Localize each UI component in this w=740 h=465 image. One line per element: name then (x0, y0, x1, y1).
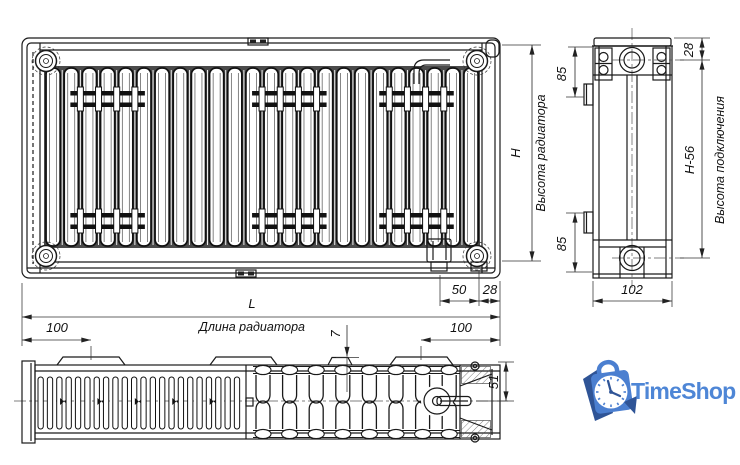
dim-cap-offset: 28 (681, 42, 696, 58)
fin-tie (77, 209, 83, 233)
chain-link (308, 429, 324, 438)
drain-valve (421, 385, 471, 417)
fin-tie (277, 87, 283, 111)
channel-tube (191, 68, 205, 246)
u-fin (283, 401, 297, 429)
dim-height-symbol: H (508, 148, 523, 158)
chain-link (335, 365, 351, 374)
fin-tie (132, 87, 138, 111)
channel-tube (173, 68, 187, 246)
clock-tick (622, 398, 624, 399)
u-fin (389, 401, 403, 429)
fin-tie (277, 209, 283, 233)
radiator-technical-drawing: H Высота радиатора 50 28 L Длина радиато… (0, 0, 740, 465)
chain-link (388, 429, 404, 438)
grille-slat (113, 377, 118, 429)
fin-tie (314, 209, 320, 233)
side-bracket-tabs (584, 84, 593, 233)
dim-tab-height: 7 (328, 330, 343, 338)
fin-tie (132, 209, 138, 233)
dim-half-depth: 51 (486, 375, 501, 389)
u-fin (309, 401, 323, 429)
dim-connection-spacing: H-56 (682, 145, 697, 174)
clock-tick (604, 379, 605, 381)
grille-slat (66, 377, 71, 429)
grille-slat (216, 377, 221, 429)
bottom-view-drawing (14, 357, 508, 443)
fin-tie (404, 87, 410, 111)
bottom-bracket-tabs (57, 357, 453, 365)
chain-link (308, 365, 324, 374)
clock-tick (617, 403, 618, 405)
plug (467, 51, 488, 72)
side-view-drawing (584, 28, 684, 288)
chain-link (282, 365, 298, 374)
plug (36, 246, 57, 267)
clock-tick (622, 385, 624, 386)
dim-left-bracket: 100 (46, 320, 68, 335)
u-fin (256, 401, 270, 429)
fin-tie (114, 87, 120, 111)
chain-link (361, 365, 377, 374)
grille-slat (225, 377, 230, 429)
grille-slat (103, 377, 108, 429)
timeshop-logo-icon (583, 360, 637, 421)
chain-link (441, 365, 457, 374)
plug (467, 246, 488, 267)
grille-slat (178, 377, 183, 429)
fin-tie (114, 209, 120, 233)
channel-tube (46, 68, 60, 246)
plug (36, 51, 57, 72)
u-fin (389, 375, 403, 403)
u-fin (336, 375, 350, 403)
grille-slat (234, 377, 239, 429)
grille-slat (197, 377, 202, 429)
fin-tie (441, 209, 447, 233)
fin-tie (295, 209, 301, 233)
dim-nipple-spacing: 50 (452, 282, 467, 297)
dim-height-caption: Высота радиатора (534, 94, 548, 211)
u-fin (309, 375, 323, 403)
clock-tick (598, 398, 600, 399)
timeshop-logo: TimeShop (583, 360, 736, 421)
front-view-drawing (22, 38, 500, 278)
grille-slat (150, 377, 155, 429)
grille-slat (38, 377, 43, 429)
channel-tube (355, 68, 369, 246)
chain-link (282, 429, 298, 438)
fin-tie (314, 87, 320, 111)
channel-tube (337, 68, 351, 246)
dim-bottom-bracket: 85 (554, 236, 569, 251)
chain-link (255, 365, 271, 374)
channel-tube (210, 68, 224, 246)
chain-link (388, 365, 404, 374)
dim-edge-offset: 28 (482, 282, 498, 297)
chain-link (415, 365, 431, 374)
u-fin (362, 401, 376, 429)
fin-tie (386, 87, 392, 111)
bottom-end-cap (460, 362, 492, 442)
channel-tube (155, 68, 169, 246)
side-connection-ports (612, 48, 684, 279)
clock-tick (617, 379, 618, 381)
channel-tube (228, 68, 242, 246)
grille-slat (122, 377, 127, 429)
grille-slat (160, 377, 165, 429)
dim-top-bracket: 85 (554, 66, 569, 81)
grille-slat (85, 377, 90, 429)
fin-tie (423, 209, 429, 233)
fin-tie (423, 87, 429, 111)
fin-tie (259, 87, 265, 111)
chain-link (441, 429, 457, 438)
grille-slat (188, 377, 193, 429)
clock-tick (598, 385, 600, 386)
fin-tie (386, 209, 392, 233)
timeshop-logo-text: TimeShop (631, 378, 736, 404)
fin-tie (441, 87, 447, 111)
clock-tick (604, 403, 605, 405)
fin-tie (404, 209, 410, 233)
top-grille-slats (38, 377, 240, 429)
chain-link (335, 429, 351, 438)
u-fin (336, 401, 350, 429)
dim-length-caption: Длина радиатора (197, 320, 305, 334)
u-fin (256, 375, 270, 403)
dim-right-bracket: 100 (450, 320, 472, 335)
grille-slat (141, 377, 146, 429)
fin-tie (295, 87, 301, 111)
chain-link (415, 429, 431, 438)
fin-tie (77, 87, 83, 111)
fin-tie (96, 209, 102, 233)
clock-center-dot (609, 390, 613, 394)
chain-link (255, 429, 271, 438)
channel-tube (464, 68, 478, 246)
grille-slat (47, 377, 52, 429)
fin-tie (259, 209, 265, 233)
dim-depth: 102 (621, 282, 643, 297)
dim-connection-caption: Высота подключения (713, 96, 727, 224)
dim-length-symbol: L (248, 296, 255, 311)
grille-slat (75, 377, 80, 429)
fin-tie (96, 87, 102, 111)
chain-link (361, 429, 377, 438)
u-fin (362, 375, 376, 403)
u-fin (283, 375, 297, 403)
